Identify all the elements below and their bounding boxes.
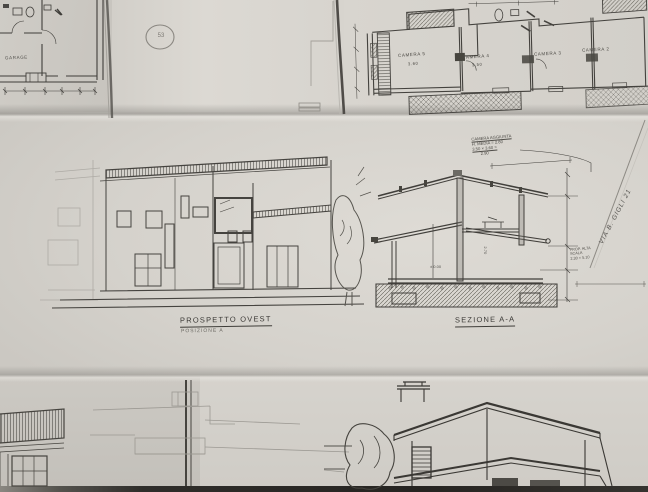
room-size-camera-5: 3.60 xyxy=(408,62,419,68)
stamp-number: 53 xyxy=(154,33,168,40)
section-height-dim: 2.70 xyxy=(483,246,488,254)
photo-of-architectural-drawings: 53 GARAGE CAMERA 5 3.60 CAMERA 4 3.50 CA… xyxy=(0,0,648,492)
elevation-subtitle: POSIZIONE A xyxy=(181,329,224,335)
elevation-title: PROSPETTO OVEST xyxy=(180,315,272,327)
garage-room-label: GARAGE xyxy=(5,55,28,61)
sheet-bottom-left xyxy=(0,378,200,488)
sheet-middle-main xyxy=(0,112,648,378)
fold-shadow-top xyxy=(0,104,648,122)
prop-note: PROP. ALTA SCALA 2.30 × 5.10 xyxy=(569,246,591,261)
fold-shadow-bottom xyxy=(0,366,648,382)
room-size-camera-4: 3.50 xyxy=(472,63,483,69)
table-edge-strip xyxy=(0,486,648,492)
section-level-dim: ± 0.00 xyxy=(430,265,441,270)
sheet-top-right-plan xyxy=(344,0,648,116)
section-title: SEZIONE A-A xyxy=(455,315,515,327)
sheet-bottom-right xyxy=(200,376,648,488)
sheet-top-middle-blank xyxy=(112,0,344,118)
camera-aggiunta-note: CAMERA AGGIUNTA H. MEDIA = 2.80 3.50 × 3… xyxy=(471,134,513,158)
